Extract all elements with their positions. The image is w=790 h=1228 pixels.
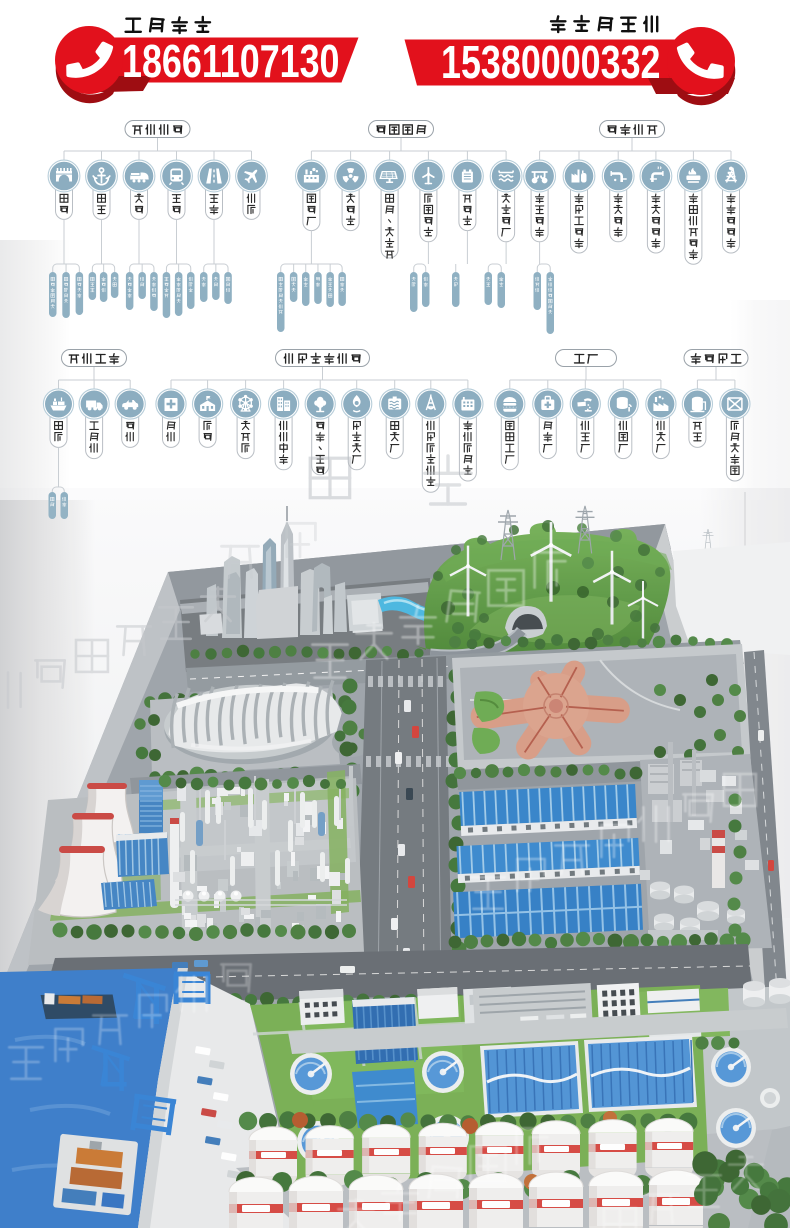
svg-text:18661107130: 18661107130 [122, 36, 340, 87]
svg-text:15380000332: 15380000332 [441, 37, 660, 88]
